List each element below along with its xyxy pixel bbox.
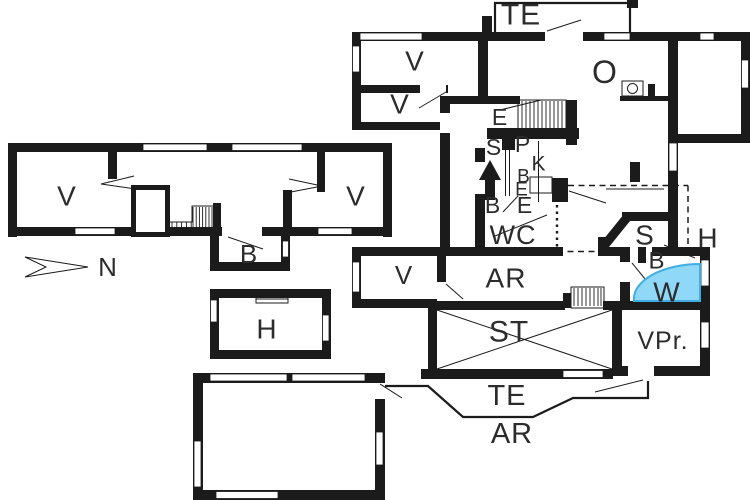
label-b-we: B [485, 192, 501, 218]
fireplace [620, 81, 675, 101]
big-room-walls [193, 373, 385, 500]
label-v-low: V [395, 260, 413, 290]
label-s-sp: S [486, 134, 502, 160]
label-st-room: ST [489, 316, 529, 349]
label-p-sp: P [515, 131, 531, 157]
label-e-we: E [517, 192, 533, 218]
label-v-right: V [346, 181, 366, 212]
s-room-diagonal-wall [604, 215, 629, 246]
label-ar-bottom: AR [491, 418, 533, 450]
label-h-right: H [697, 223, 718, 254]
label-k-room: K [531, 153, 546, 176]
label-o-room: O [592, 54, 618, 90]
label-w-room: W [653, 277, 680, 308]
label-e-hall: E [492, 104, 508, 130]
floor-plan: TE V V O E S P K B E B E WC V V B N H V … [0, 0, 750, 500]
b-annex-window [283, 241, 289, 257]
south-rooms-openings [353, 262, 604, 378]
label-v-upper1: V [405, 46, 425, 77]
label-te-bottom: TE [487, 380, 526, 412]
big-room-openings [194, 374, 402, 499]
label-vpr-room: VPr. [637, 327, 688, 355]
label-te-top: TE [501, 0, 541, 32]
label-v-upper2: V [390, 89, 410, 120]
label-b-annex: B [240, 239, 258, 269]
label-b-right: B [648, 248, 665, 275]
label-wc: WC [490, 220, 537, 250]
north-arrow [25, 257, 88, 277]
label-ar-room: AR [486, 263, 527, 294]
label-s-room: S [635, 220, 655, 251]
label-v-left: V [57, 181, 77, 212]
label-h-room: H [256, 314, 277, 345]
lower-stairs [571, 287, 604, 308]
label-north: N [98, 252, 118, 282]
